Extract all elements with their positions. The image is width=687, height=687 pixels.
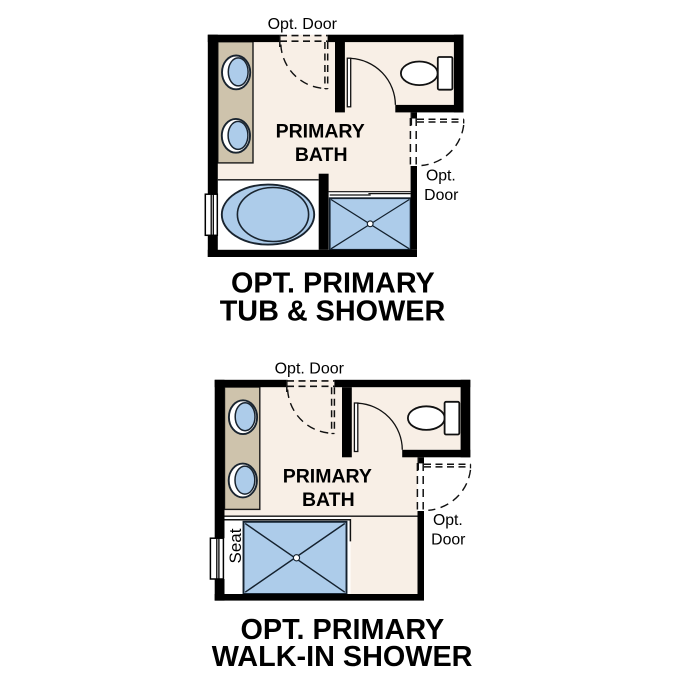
svg-text:Seat: Seat xyxy=(226,528,245,563)
svg-text:Opt.: Opt. xyxy=(426,168,456,185)
svg-text:WALK-IN SHOWER: WALK-IN SHOWER xyxy=(212,641,473,673)
svg-text:BATH: BATH xyxy=(295,144,348,166)
svg-text:BATH: BATH xyxy=(302,489,355,511)
svg-text:TUB & SHOWER: TUB & SHOWER xyxy=(220,295,446,327)
svg-text:PRIMARY: PRIMARY xyxy=(283,465,372,487)
svg-text:Opt. Door: Opt. Door xyxy=(275,361,345,378)
svg-text:Door: Door xyxy=(431,532,465,549)
svg-text:PRIMARY: PRIMARY xyxy=(276,121,365,143)
svg-text:Opt.: Opt. xyxy=(433,512,463,529)
svg-text:Door: Door xyxy=(424,187,458,204)
svg-text:Opt. Door: Opt. Door xyxy=(268,16,338,33)
